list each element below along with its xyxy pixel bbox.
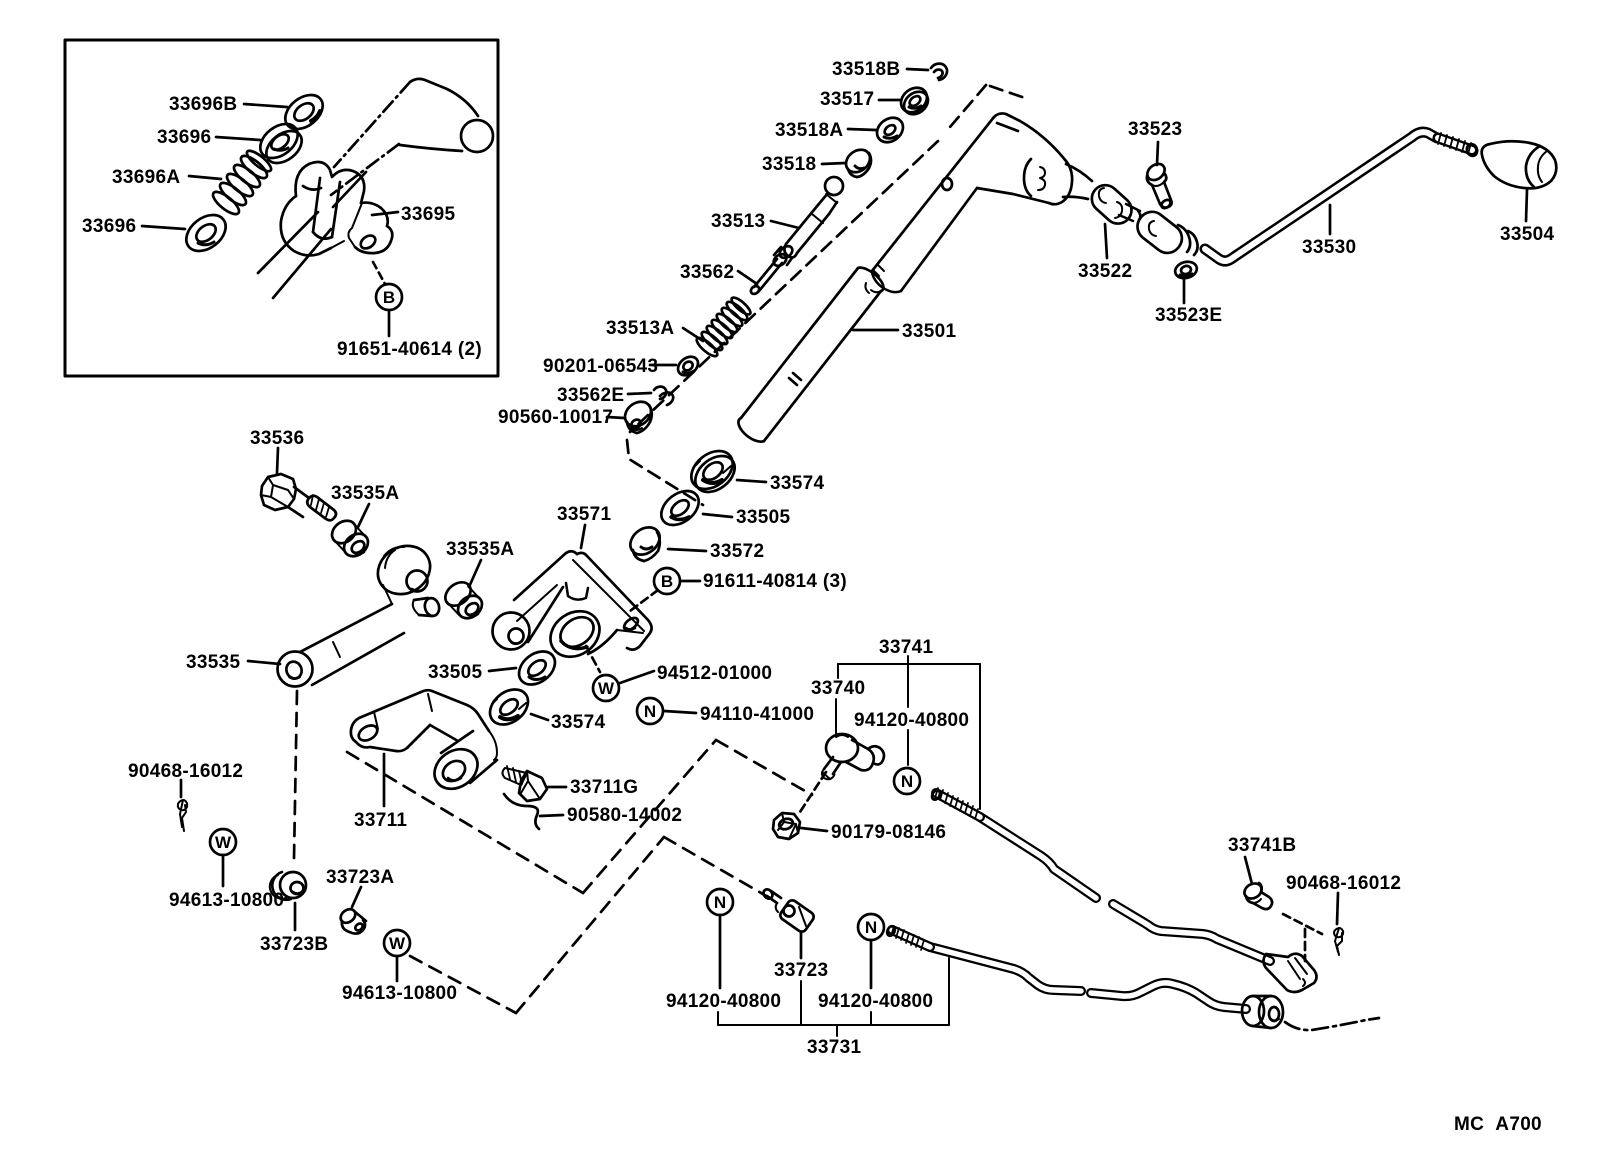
- svg-text:B: B: [383, 288, 395, 307]
- svg-text:94613-10800: 94613-10800: [169, 890, 284, 911]
- svg-text:N: N: [865, 918, 877, 937]
- svg-text:33572: 33572: [710, 541, 764, 562]
- svg-text:33723: 33723: [774, 960, 828, 981]
- svg-text:91611-40814 (3): 91611-40814 (3): [703, 571, 847, 592]
- svg-text:33723B: 33723B: [260, 934, 328, 955]
- svg-text:33696B: 33696B: [169, 94, 237, 115]
- svg-text:33711G: 33711G: [570, 777, 638, 798]
- svg-text:33504: 33504: [1500, 224, 1554, 245]
- svg-text:94120-40800: 94120-40800: [666, 991, 781, 1012]
- svg-text:33696A: 33696A: [112, 167, 180, 188]
- svg-text:33562: 33562: [680, 262, 734, 283]
- svg-text:94613-10800: 94613-10800: [342, 983, 457, 1004]
- svg-text:90468-16012: 90468-16012: [128, 761, 243, 782]
- svg-text:B: B: [661, 572, 673, 591]
- svg-text:33731: 33731: [807, 1037, 861, 1058]
- svg-text:33711: 33711: [354, 810, 407, 831]
- svg-text:33695: 33695: [401, 204, 455, 225]
- svg-text:94512-01000: 94512-01000: [657, 663, 772, 684]
- svg-text:W: W: [389, 934, 406, 953]
- svg-text:91651-40614 (2): 91651-40614 (2): [337, 339, 482, 360]
- svg-text:90580-14002: 90580-14002: [567, 805, 682, 826]
- svg-text:94120-40800: 94120-40800: [854, 710, 969, 731]
- svg-text:33723A: 33723A: [326, 867, 394, 888]
- svg-text:33571: 33571: [557, 504, 611, 525]
- svg-text:W: W: [215, 833, 232, 852]
- svg-text:W: W: [598, 679, 615, 698]
- svg-text:33523: 33523: [1128, 119, 1182, 140]
- svg-text:33523E: 33523E: [1155, 305, 1222, 326]
- svg-text:33535A: 33535A: [446, 539, 514, 560]
- svg-text:33501: 33501: [902, 321, 956, 342]
- svg-text:33535A: 33535A: [331, 483, 399, 504]
- svg-text:90468-16012: 90468-16012: [1286, 873, 1401, 894]
- svg-text:MC A700: MC A700: [1454, 1114, 1542, 1135]
- svg-text:33574: 33574: [770, 473, 824, 494]
- svg-text:33741: 33741: [879, 637, 933, 658]
- svg-text:94120-40800: 94120-40800: [818, 991, 933, 1012]
- svg-text:90560-10017: 90560-10017: [498, 407, 613, 428]
- svg-text:33696: 33696: [157, 127, 211, 148]
- svg-text:33574: 33574: [551, 712, 605, 733]
- svg-text:33696: 33696: [82, 216, 136, 237]
- svg-text:33740: 33740: [811, 678, 865, 699]
- svg-text:33518B: 33518B: [832, 59, 900, 80]
- svg-text:33741B: 33741B: [1228, 835, 1296, 856]
- svg-text:94110-41000: 94110-41000: [700, 704, 814, 725]
- svg-text:33505: 33505: [428, 662, 482, 683]
- svg-text:N: N: [901, 772, 913, 791]
- svg-text:33513: 33513: [711, 211, 765, 232]
- svg-text:33517: 33517: [820, 89, 874, 110]
- svg-text:33536: 33536: [250, 428, 304, 449]
- svg-text:33530: 33530: [1302, 237, 1356, 258]
- svg-text:33522: 33522: [1078, 261, 1132, 282]
- svg-text:33513A: 33513A: [606, 318, 674, 339]
- svg-text:N: N: [644, 702, 656, 721]
- svg-text:90179-08146: 90179-08146: [831, 822, 946, 843]
- svg-text:33518: 33518: [762, 154, 816, 175]
- svg-text:N: N: [714, 893, 726, 912]
- svg-text:33535: 33535: [186, 652, 240, 673]
- svg-text:33562E: 33562E: [557, 385, 624, 406]
- svg-text:33505: 33505: [736, 507, 790, 528]
- svg-text:90201-06543: 90201-06543: [543, 356, 658, 377]
- svg-text:33518A: 33518A: [775, 120, 843, 141]
